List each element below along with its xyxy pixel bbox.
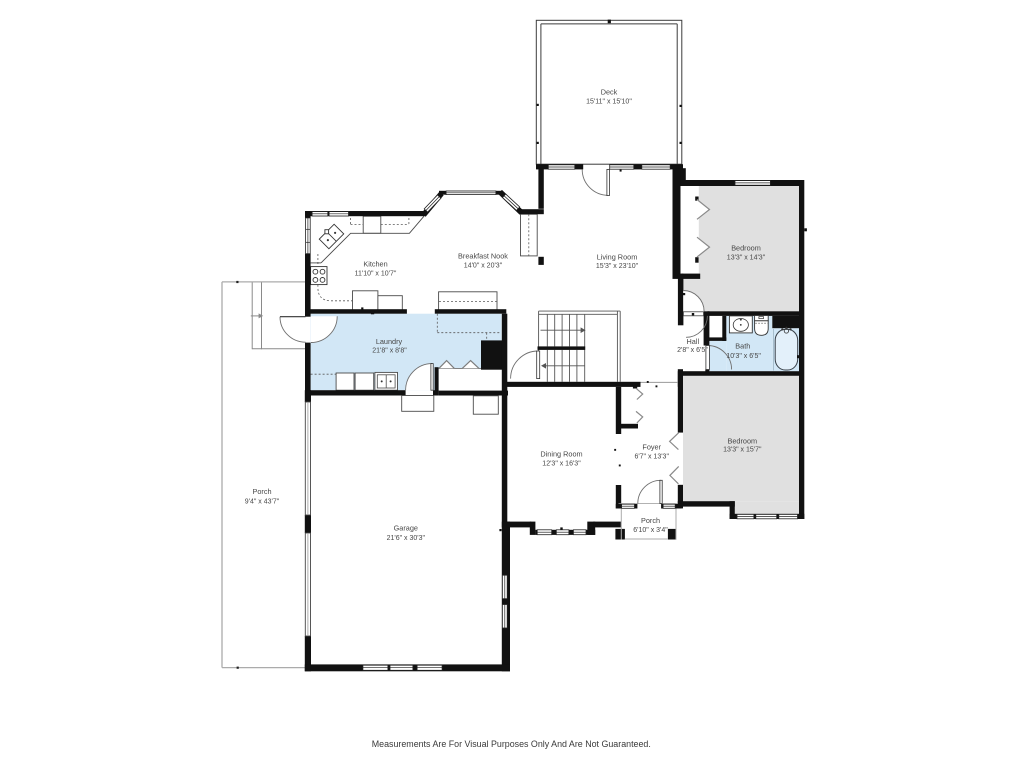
svg-text:Bedroom: Bedroom xyxy=(731,244,761,253)
svg-text:Foyer: Foyer xyxy=(642,442,661,451)
svg-text:Garage: Garage xyxy=(394,524,418,533)
svg-text:15'3" x 23'10": 15'3" x 23'10" xyxy=(596,263,639,270)
svg-text:2'8" x 6'5": 2'8" x 6'5" xyxy=(677,347,708,354)
svg-text:Bath: Bath xyxy=(735,342,750,351)
svg-text:Dining Room: Dining Room xyxy=(540,449,582,458)
svg-text:Deck: Deck xyxy=(601,88,618,97)
svg-text:15'11" x 15'10": 15'11" x 15'10" xyxy=(586,99,632,106)
svg-text:Bedroom: Bedroom xyxy=(727,436,757,445)
svg-text:11'10" x 10'7": 11'10" x 10'7" xyxy=(355,271,397,278)
svg-text:Hall: Hall xyxy=(687,337,700,346)
svg-text:10'3" x 6'5": 10'3" x 6'5" xyxy=(726,353,761,360)
svg-text:6'7" x 13'3": 6'7" x 13'3" xyxy=(634,454,669,461)
svg-text:Porch: Porch xyxy=(252,487,271,496)
svg-text:21'8" x 8'8": 21'8" x 8'8" xyxy=(372,347,407,354)
svg-text:6'10" x 3'4": 6'10" x 3'4" xyxy=(633,527,668,534)
svg-text:Porch: Porch xyxy=(641,516,660,525)
svg-text:21'6" x 30'3": 21'6" x 30'3" xyxy=(387,535,426,542)
svg-text:Kitchen: Kitchen xyxy=(363,260,387,269)
svg-text:Measurements Are For Visual Pu: Measurements Are For Visual Purposes Onl… xyxy=(372,739,651,749)
svg-text:13'3" x 14'3": 13'3" x 14'3" xyxy=(727,255,766,262)
svg-text:Living Room: Living Room xyxy=(597,252,638,261)
svg-text:9'4" x 43'7": 9'4" x 43'7" xyxy=(245,498,280,505)
svg-text:12'3" x 16'3": 12'3" x 16'3" xyxy=(542,461,581,468)
svg-text:Breakfast Nook: Breakfast Nook xyxy=(458,251,508,260)
svg-text:13'3" x 15'7": 13'3" x 15'7" xyxy=(723,447,762,454)
svg-text:14'0" x 20'3": 14'0" x 20'3" xyxy=(464,262,503,269)
svg-text:Laundry: Laundry xyxy=(376,337,403,346)
